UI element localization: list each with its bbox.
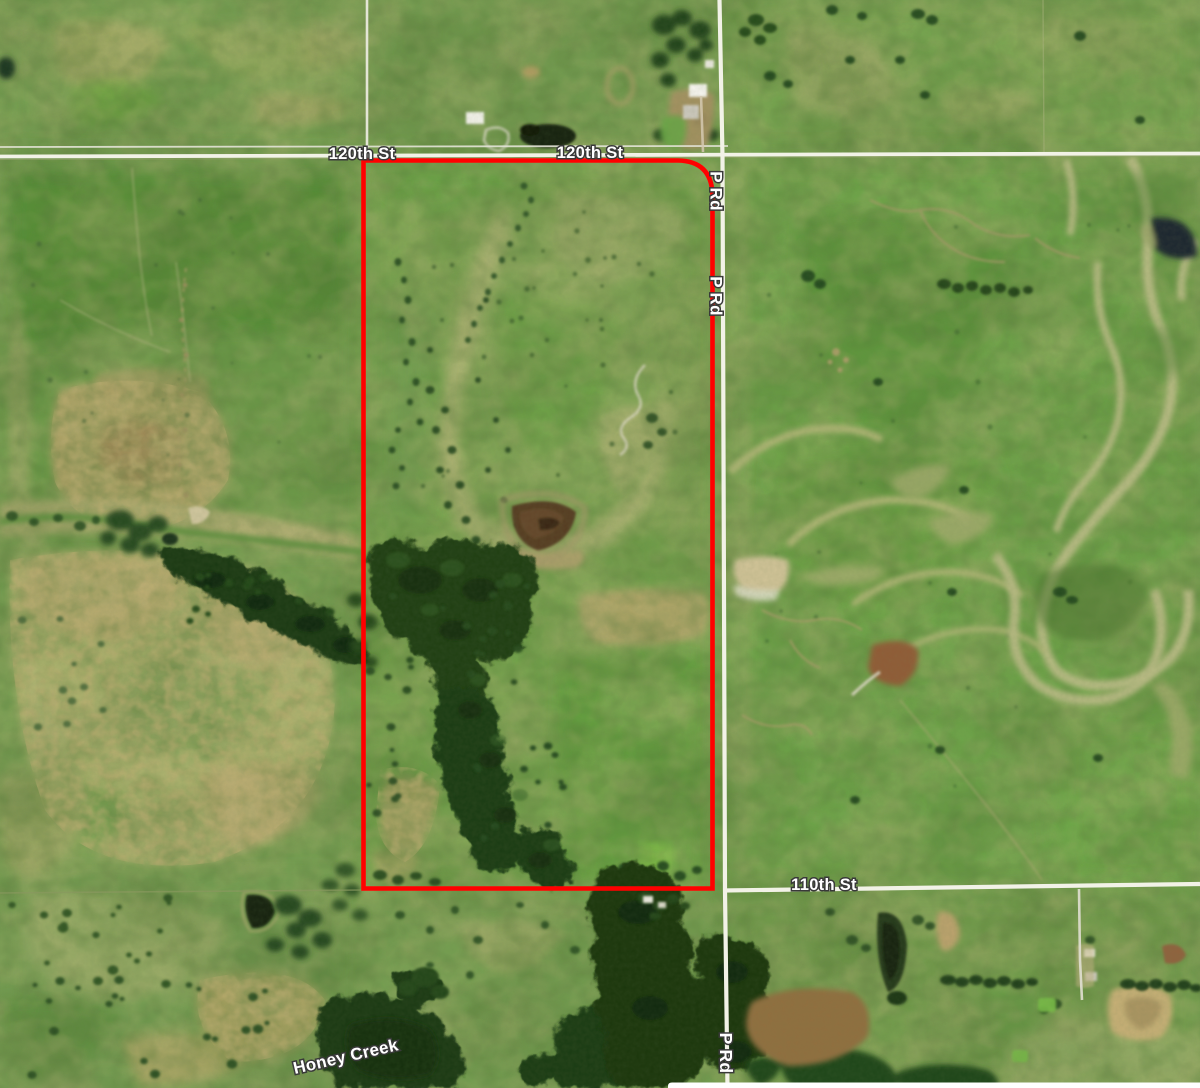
svg-text:P Rd: P Rd [707, 276, 726, 316]
svg-text:P Rd: P Rd [707, 171, 726, 211]
svg-text:P Rd: P Rd [716, 1033, 736, 1074]
svg-text:120th St: 120th St [557, 144, 624, 162]
svg-text:120th St: 120th St [329, 145, 396, 163]
svg-text:110th St: 110th St [791, 876, 857, 894]
